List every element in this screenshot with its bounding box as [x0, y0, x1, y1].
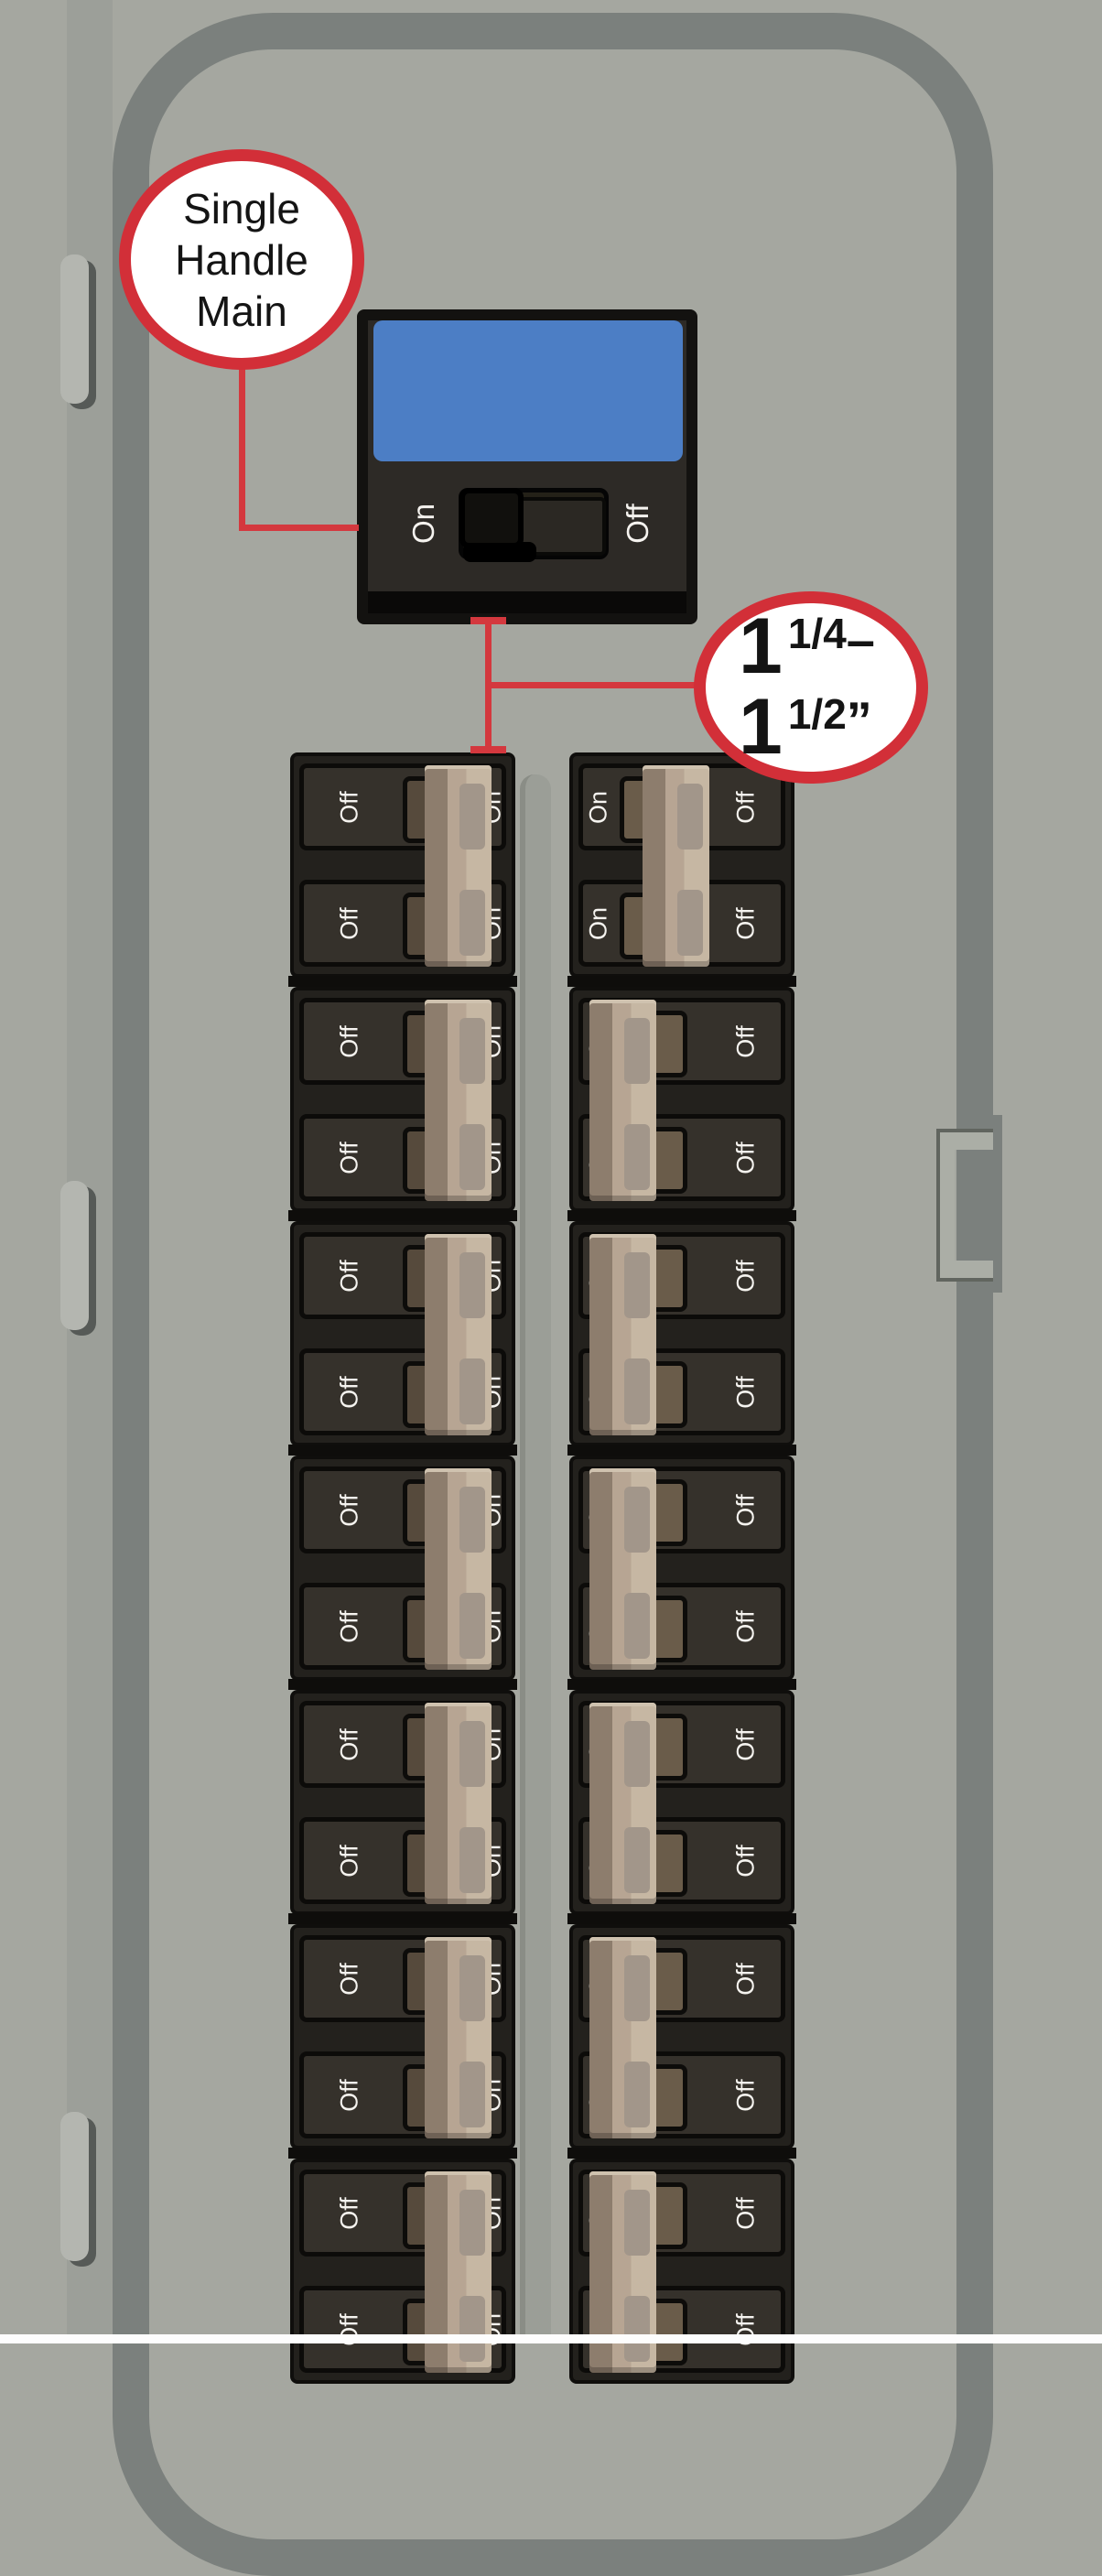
handle-inset: [459, 2296, 485, 2362]
dimension-cap-top: [470, 617, 506, 624]
measurement-line-2: 1 1/2 ”: [739, 687, 872, 768]
breaker-unit: OnOffOnOff: [569, 1456, 794, 1681]
breaker-off-label: Off: [336, 1142, 364, 1174]
breaker-unit: OffOnOffOn: [290, 1456, 515, 1681]
knockout-size-callout: 1 1/4 – 1 1/2 ”: [694, 591, 928, 784]
breaker-unit-joiner: [288, 2148, 517, 2159]
breaker-off-label: Off: [336, 1610, 364, 1643]
breaker-handle[interactable]: [425, 1000, 492, 1201]
breaker-unit-joiner: [567, 1210, 796, 1221]
handle-inset: [459, 2062, 485, 2127]
handle-inset: [677, 890, 703, 956]
breaker-off-label: Off: [336, 1025, 364, 1058]
handle-inset: [624, 2062, 650, 2127]
breaker-unit-joiner: [288, 1913, 517, 1924]
main-breaker-off-label: Off: [621, 503, 655, 543]
handle-inset: [624, 1252, 650, 1318]
breaker-handle[interactable]: [589, 1937, 656, 2138]
handle-inset: [459, 1358, 485, 1424]
breaker-off-label: Off: [336, 1494, 364, 1527]
breaker-handle[interactable]: [425, 1468, 492, 1670]
breaker-handle[interactable]: [425, 1234, 492, 1435]
measurement-1-value: 1: [739, 607, 783, 686]
breaker-off-label: Off: [732, 1376, 761, 1409]
handle-inset: [624, 1358, 650, 1424]
breaker-off-label: Off: [732, 907, 761, 940]
breaker-off-label: Off: [336, 791, 364, 824]
panel-diagram: { "colors": { "panel_gray": "#a5a7a0", "…: [0, 0, 1102, 2343]
handle-inset: [624, 1124, 650, 1190]
handle-inset: [459, 1252, 485, 1318]
handle-inset: [459, 1593, 485, 1659]
breaker-off-label: Off: [336, 2197, 364, 2230]
breaker-unit: OnOffOnOff: [569, 987, 794, 1212]
breaker-unit: OffOnOffOn: [290, 987, 515, 1212]
dimension-cap-bottom: [470, 746, 506, 753]
breaker-off-label: Off: [336, 2079, 364, 2112]
leader-line-vertical: [239, 363, 245, 531]
breaker-off-label: Off: [732, 1845, 761, 1878]
breaker-off-label: Off: [732, 1963, 761, 1996]
measurement-inch-mark: ”: [847, 695, 872, 746]
breaker-off-label: Off: [732, 1025, 761, 1058]
breaker-off-label: Off: [732, 1142, 761, 1174]
callout-line-1: Single: [183, 183, 300, 234]
breaker-off-label: Off: [336, 1963, 364, 1996]
breaker-unit-joiner: [567, 2148, 796, 2159]
handle-inset: [624, 1721, 650, 1787]
breaker-handle[interactable]: [643, 765, 709, 967]
breaker-off-label: Off: [732, 1260, 761, 1293]
breaker-unit: OffOnOffOn: [290, 1924, 515, 2149]
breaker-on-label: On: [585, 790, 613, 823]
handle-inset: [624, 1593, 650, 1659]
measurement-line-1: 1 1/4 –: [739, 607, 875, 687]
main-breaker: On Off: [357, 309, 697, 624]
breaker-handle[interactable]: [589, 1468, 656, 1670]
breaker-off-label: Off: [732, 1610, 761, 1643]
handle-inset: [459, 890, 485, 956]
breaker-unit-joiner: [288, 1679, 517, 1690]
breaker-unit: OnOffOnOff: [569, 752, 794, 978]
breaker-off-label: Off: [336, 1728, 364, 1761]
breaker-unit: OnOffOnOff: [569, 1690, 794, 1915]
leader-line-horizontal: [239, 525, 359, 531]
breaker-unit: OffOnOffOn: [290, 752, 515, 978]
breaker-off-label: Off: [336, 1260, 364, 1293]
measurement-2-value: 1: [739, 687, 783, 766]
handle-inset: [677, 784, 703, 850]
measurement-dash: –: [847, 614, 875, 666]
breaker-unit-joiner: [567, 1913, 796, 1924]
breaker-handle[interactable]: [425, 1703, 492, 1904]
handle-inset: [624, 2296, 650, 2362]
breaker-unit: OnOffOnOff: [569, 2159, 794, 2384]
handle-inset: [459, 1955, 485, 2021]
breaker-unit-joiner: [288, 1210, 517, 1221]
breaker-unit: OnOffOnOff: [569, 1924, 794, 2149]
handle-inset: [459, 784, 485, 850]
breaker-handle[interactable]: [425, 1937, 492, 2138]
handle-inset: [459, 1124, 485, 1190]
breaker-unit: OffOnOffOn: [290, 1690, 515, 1915]
breaker-unit-joiner: [567, 1679, 796, 1690]
breaker-off-label: Off: [732, 2079, 761, 2112]
breaker-handle[interactable]: [589, 1000, 656, 1201]
handle-inset: [459, 1018, 485, 1084]
breaker-handle[interactable]: [589, 1703, 656, 1904]
breaker-off-label: Off: [732, 1728, 761, 1761]
handle-inset: [459, 1721, 485, 1787]
handle-inset: [459, 1487, 485, 1553]
breaker-unit: OnOffOnOff: [569, 1221, 794, 1446]
breaker-unit-joiner: [567, 976, 796, 987]
handle-inset: [459, 2190, 485, 2256]
breaker-unit-joiner: [288, 1445, 517, 1456]
single-handle-main-callout: Single Handle Main: [119, 149, 364, 370]
main-breaker-label-area: [373, 320, 683, 461]
callout-line-3: Main: [196, 286, 287, 337]
handle-inset: [624, 2190, 650, 2256]
breaker-on-label: On: [585, 906, 613, 939]
callout-line-2: Handle: [175, 234, 308, 286]
breaker-off-label: Off: [336, 1376, 364, 1409]
handle-inset: [624, 1487, 650, 1553]
handle-inset: [624, 1955, 650, 2021]
main-breaker-base: [368, 591, 686, 613]
handle-inset: [459, 1827, 485, 1893]
breaker-off-label: Off: [732, 1494, 761, 1527]
breaker-unit: OffOnOffOn: [290, 1221, 515, 1446]
breaker-handle[interactable]: [589, 1234, 656, 1435]
breaker-off-label: Off: [336, 907, 364, 940]
breaker-unit-joiner: [567, 1445, 796, 1456]
breaker-unit-joiner: [288, 976, 517, 987]
image-bottom-edge: [0, 2334, 1102, 2343]
measurement-1-fraction: 1/4: [788, 612, 847, 655]
main-breaker-on-label: On: [406, 503, 441, 544]
breaker-handle[interactable]: [425, 765, 492, 967]
breaker-off-label: Off: [732, 791, 761, 824]
main-breaker-toggle[interactable]: [459, 488, 524, 548]
handle-inset: [624, 1827, 650, 1893]
breaker-off-label: Off: [336, 1845, 364, 1878]
breaker-off-label: Off: [732, 2197, 761, 2230]
handle-inset: [624, 1018, 650, 1084]
breaker-unit: OffOnOffOn: [290, 2159, 515, 2384]
measurement-2-fraction: 1/2: [788, 693, 847, 735]
dimension-line-horizontal: [488, 682, 700, 688]
